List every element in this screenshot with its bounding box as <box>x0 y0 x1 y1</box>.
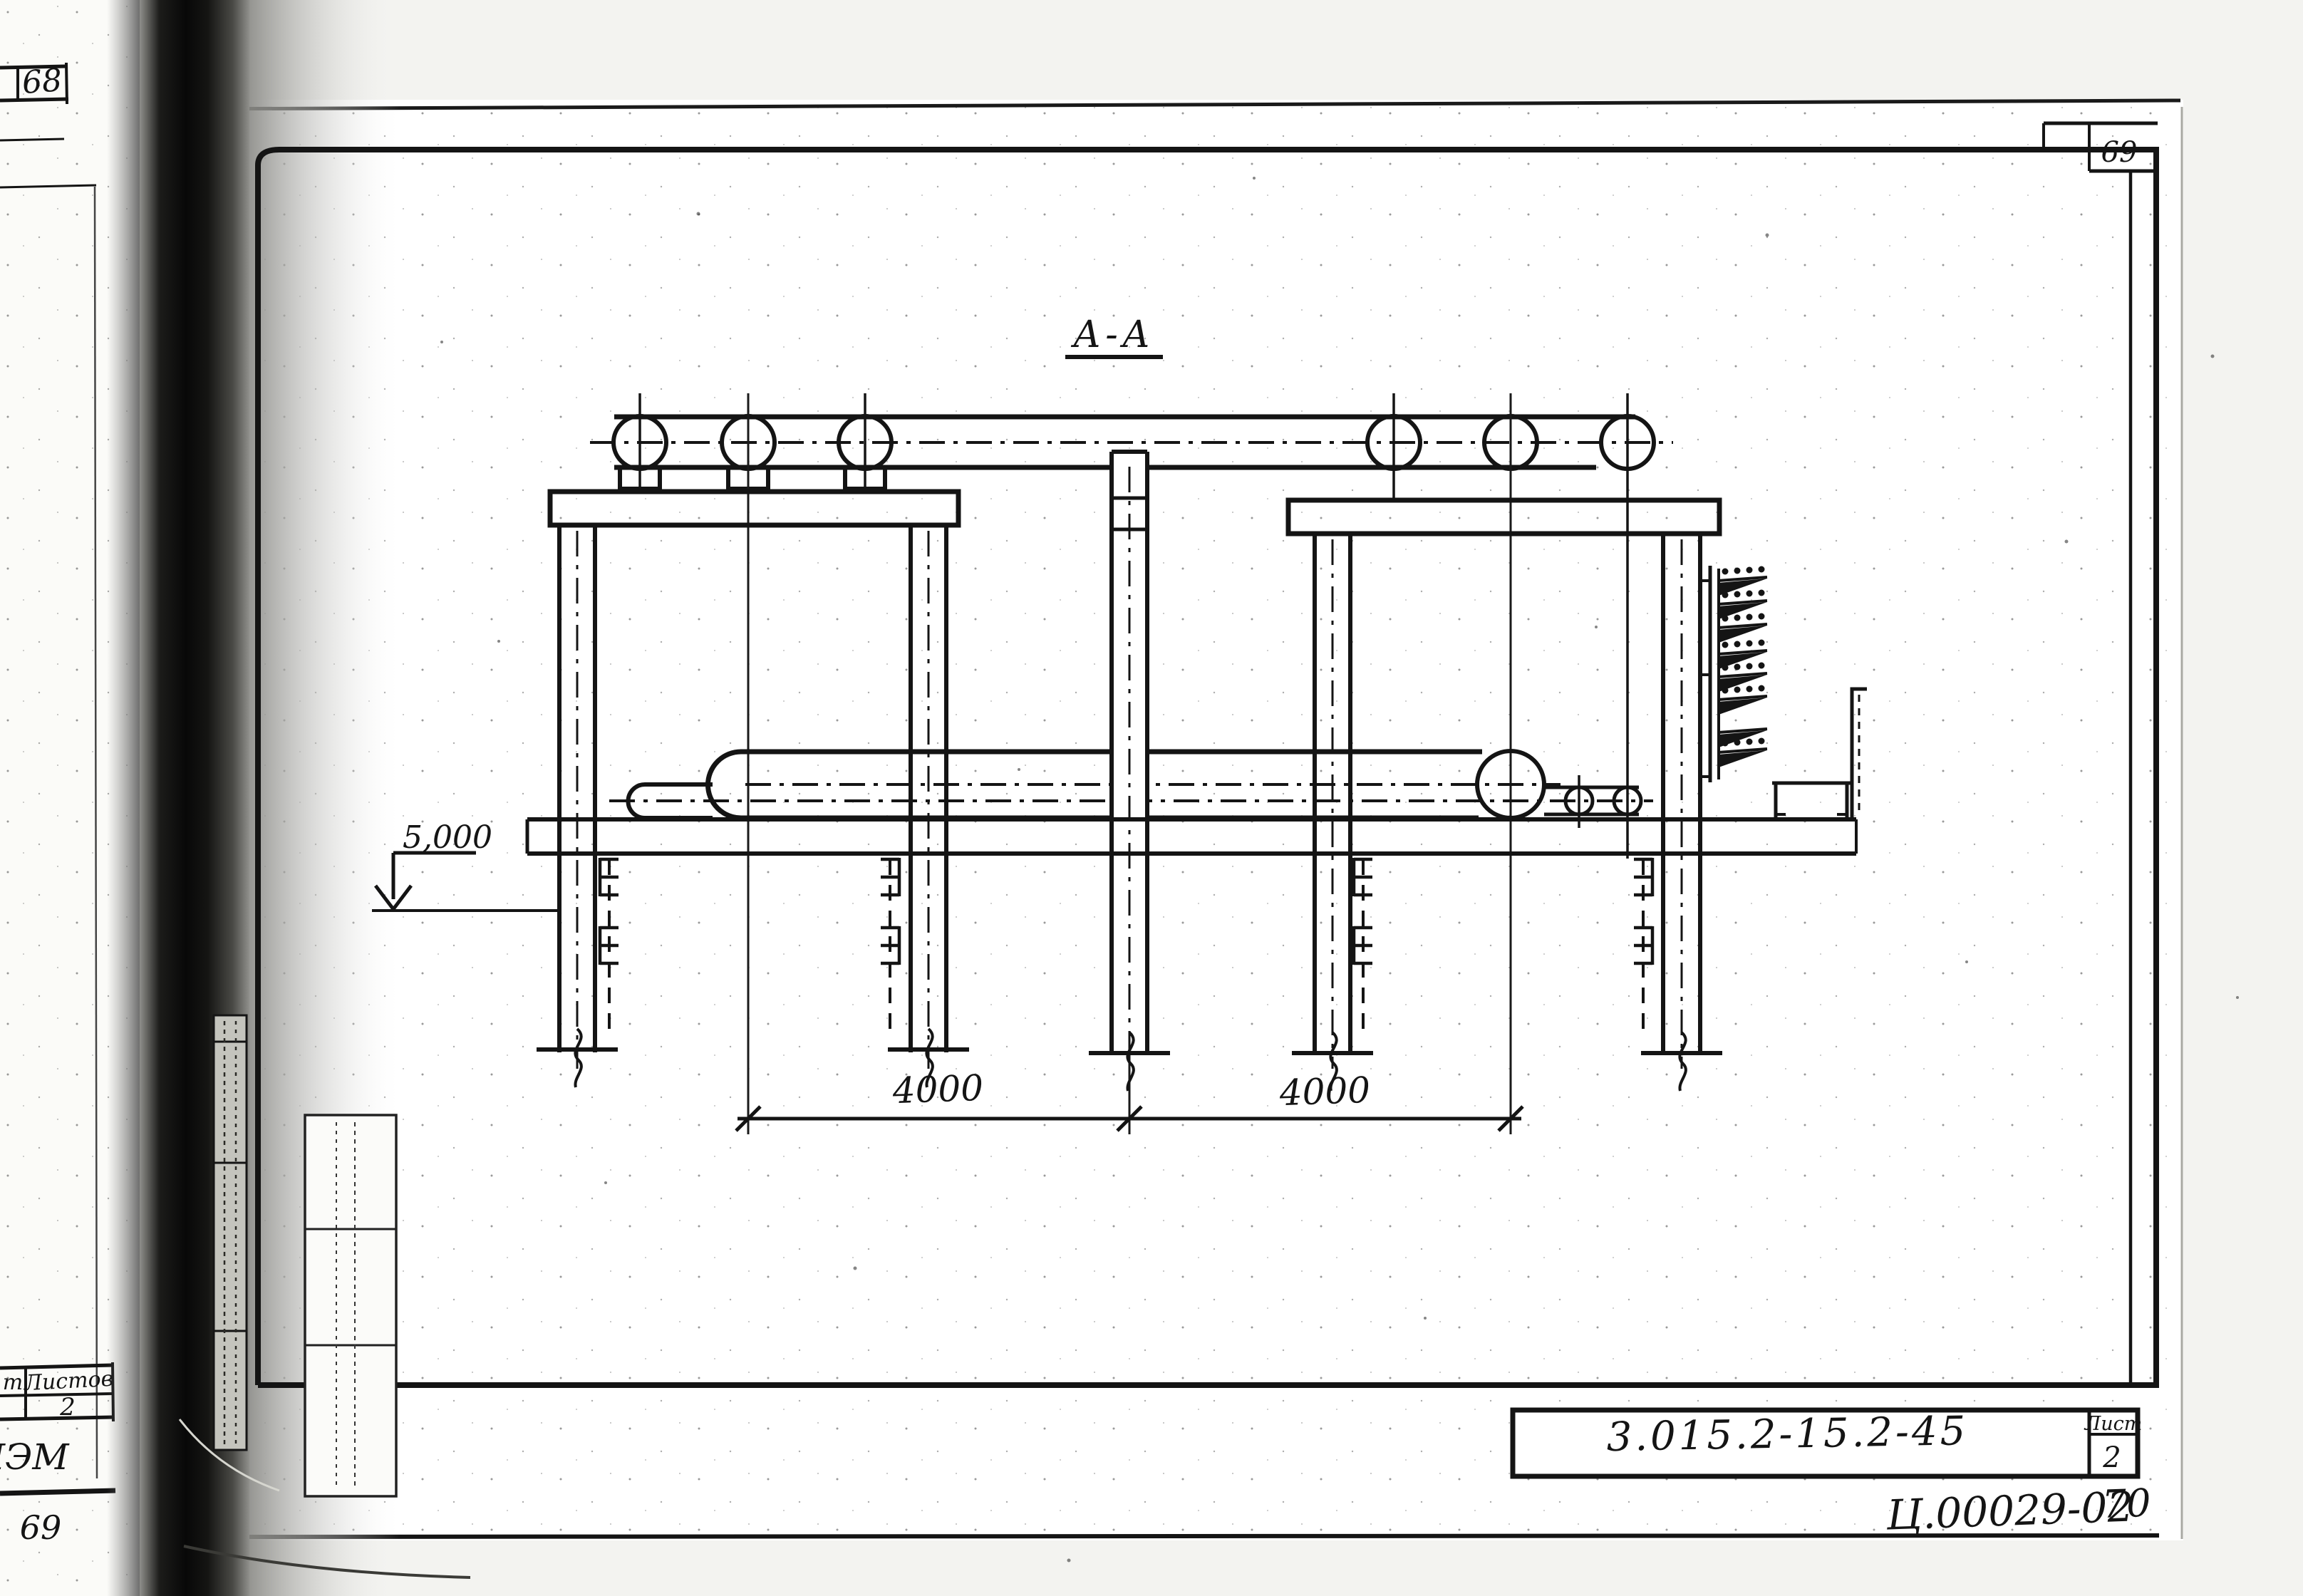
elevation-label: 5,000 <box>403 819 492 856</box>
left-page-handwritten-code: ПЭМ <box>0 1436 70 1478</box>
dimension-label-right: 4000 <box>1278 1069 1371 1114</box>
scanned-drawing-page: 68 т Листов 2 ПЭМ 69 <box>0 0 2303 1596</box>
sheet-cell-value: 2 <box>2102 1441 2121 1474</box>
sheets-header-fragment: т <box>3 1370 23 1395</box>
section-label: А-А <box>1070 313 1154 356</box>
sheets-value: 2 <box>59 1393 76 1421</box>
left-page-top-number: 68 <box>21 62 63 101</box>
document-number: 3.015.2-15.2-45 <box>1606 1408 1969 1461</box>
sheet-cell-label: Лист <box>2084 1413 2143 1435</box>
scan-canvas: 68 т Листов 2 ПЭМ 69 <box>0 0 2303 1596</box>
sheet-bottom-edge <box>214 1535 2159 1537</box>
sheet-top-right-page-number: 69 <box>2101 136 2138 169</box>
title-block: 3.015.2-15.2-45 Лист 2 <box>1513 1408 2142 1476</box>
gutter-stamp-strip <box>214 1015 247 1450</box>
footer-inscription: Ц.00029-02 70 <box>1885 1481 2152 1540</box>
inventory-number: Ц.00029-02 <box>1885 1483 2134 1540</box>
section-title: А-А <box>1065 313 1163 357</box>
left-page-bottom-number: 69 <box>20 1508 62 1547</box>
center-column <box>1112 452 1147 1134</box>
footer-page-number: 70 <box>2101 1481 2152 1527</box>
sheets-header: Листов <box>22 1367 114 1396</box>
dimension-label-left: 4000 <box>891 1067 984 1111</box>
main-stamp-column <box>305 1115 396 1496</box>
